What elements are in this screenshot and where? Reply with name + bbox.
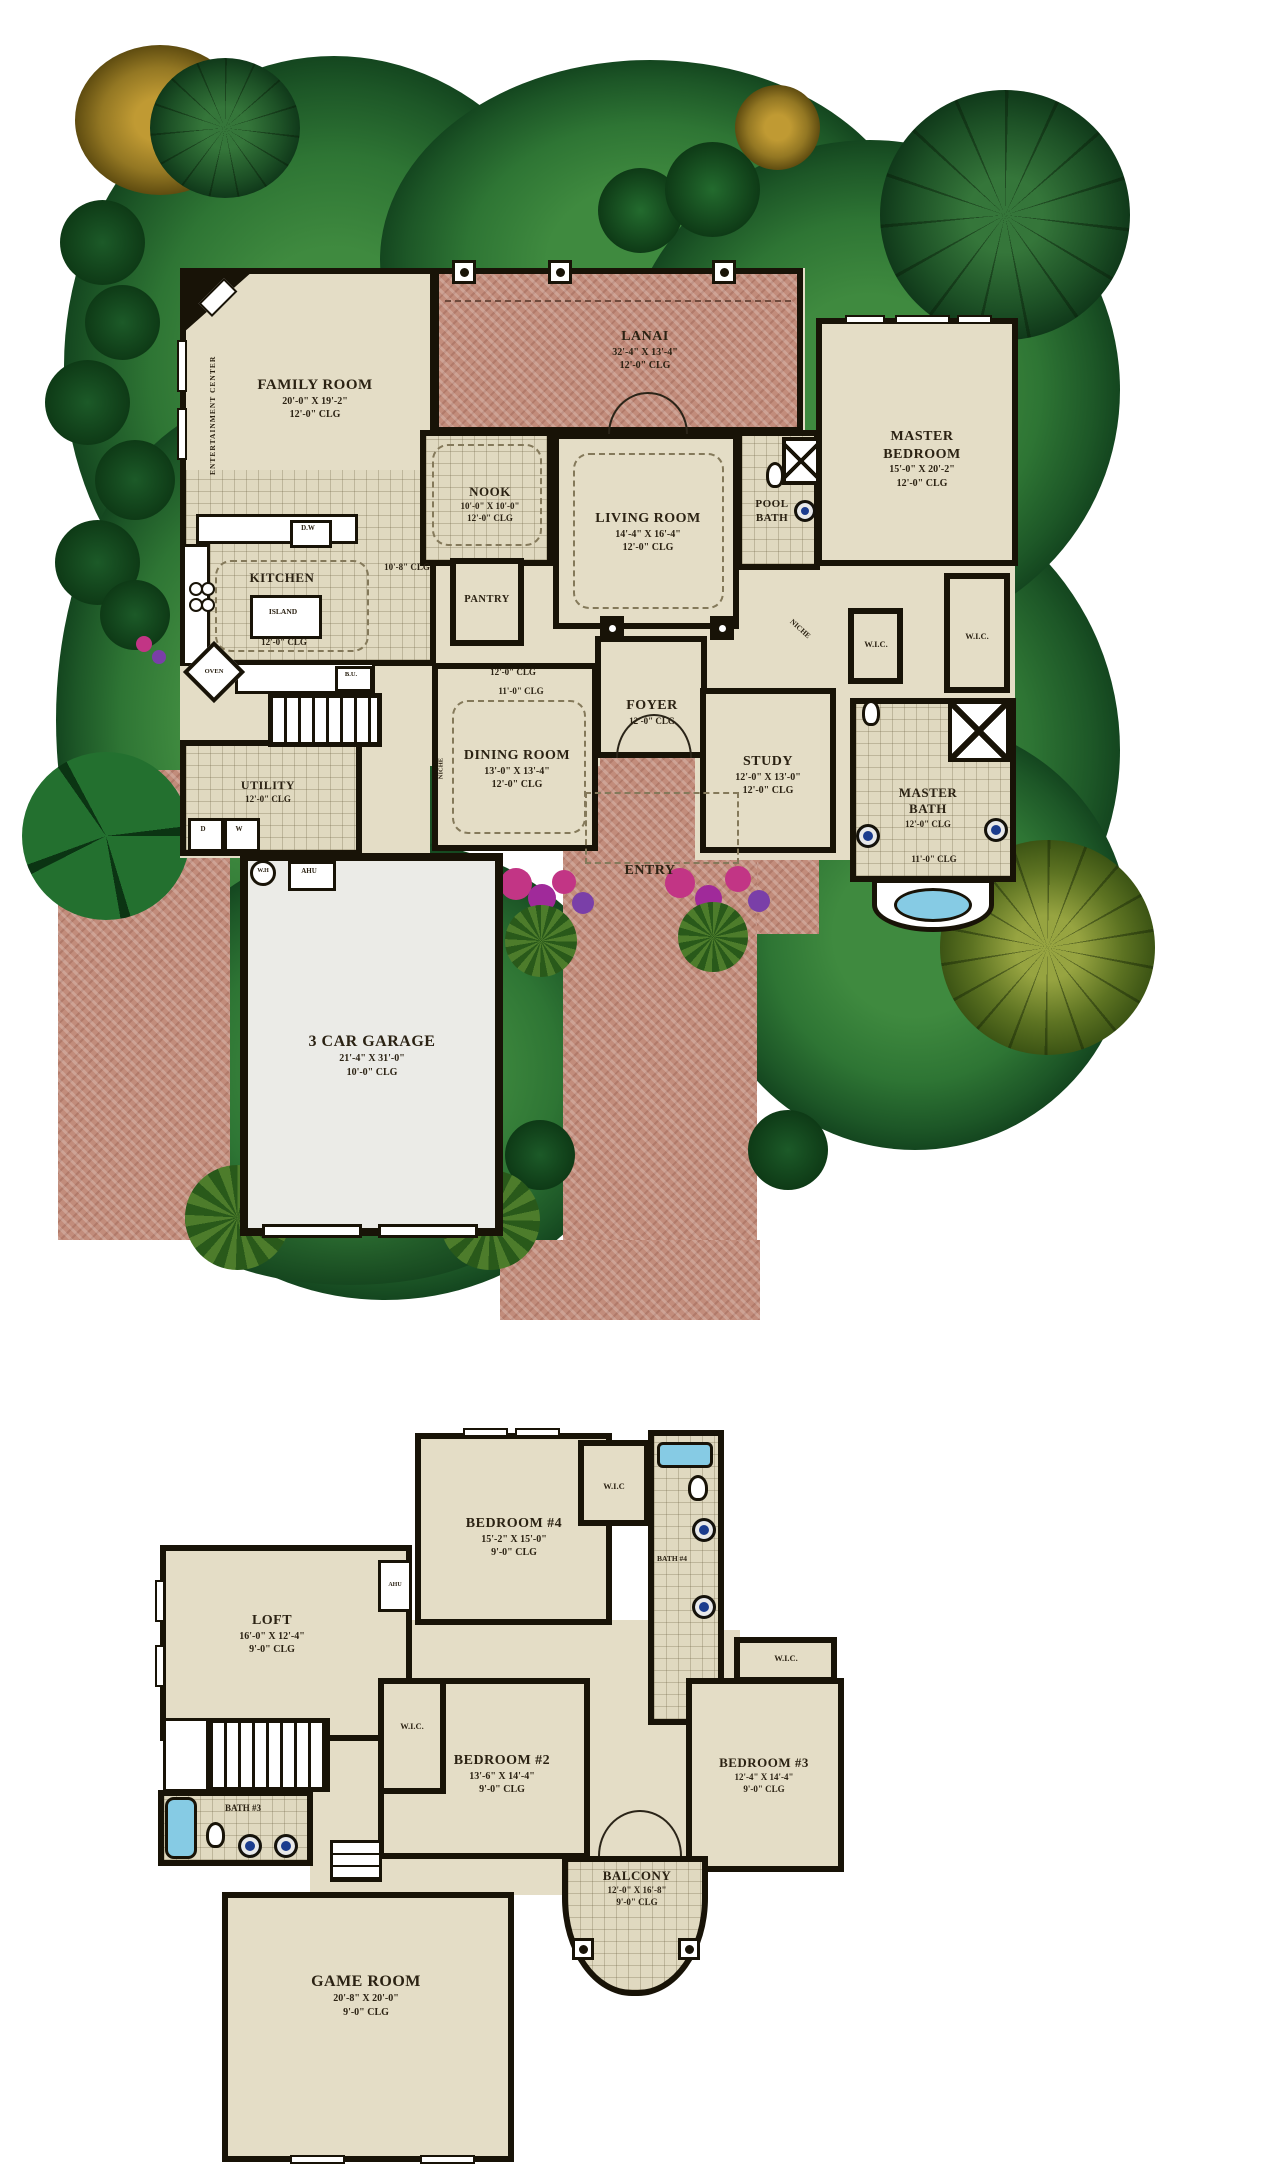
- bedroom2-label: BEDROOM #2 13'-6" X 14'-4" 9'-0" CLG: [427, 1752, 577, 1797]
- garage-door-panel: [262, 1224, 362, 1238]
- cooktop-burner: [201, 598, 215, 612]
- magenta-flowers: [552, 870, 576, 894]
- bush: [100, 580, 170, 650]
- sink: [692, 1595, 716, 1619]
- window: [463, 1428, 508, 1437]
- washer-label: W: [236, 826, 243, 834]
- master-bath-label: MASTER BATH 12'-0" CLG: [883, 785, 973, 830]
- bedroom3-label: BEDROOM #3 12'-4" X 14'-4" 9'-0" CLG: [694, 1755, 834, 1796]
- bath3-label: BATH #3: [225, 1804, 261, 1814]
- family-room-label: FAMILY ROOM 20'-0" X 19'-2" 12'-0" CLG: [215, 376, 415, 422]
- bu-label: B.U.: [345, 671, 357, 678]
- living-room-label: LIVING ROOM 14'-4" X 16'-4" 12'-0" CLG: [568, 510, 728, 555]
- wic-bed2-label: W.I.C.: [400, 1722, 424, 1731]
- balcony-label: BALCONY 12'-0" X 16'-8" 9'-0" CLG: [572, 1868, 702, 1909]
- first-floor-site-plan: ENTERTAINMENT CENTER D.W ISLAND: [0, 0, 1280, 1340]
- nook-label: NOOK 10'-0" X 10'-0" 12'-0" CLG: [435, 484, 545, 525]
- window: [515, 1428, 560, 1437]
- toilet: [766, 462, 784, 488]
- dining-hall-clg2: 11'-0" CLG: [498, 687, 543, 697]
- island: [250, 595, 322, 639]
- window: [895, 315, 950, 324]
- stair-landing: [163, 1718, 209, 1792]
- column: [600, 616, 624, 640]
- toilet: [862, 700, 880, 726]
- garage-door-panel: [378, 1224, 478, 1238]
- toilet: [206, 1822, 225, 1848]
- balcony-post: [678, 1938, 700, 1960]
- bath4-label: BATH #4: [657, 1555, 687, 1563]
- window: [177, 340, 187, 392]
- wic-bed4-label: W.I.C: [603, 1482, 624, 1491]
- window: [845, 315, 885, 324]
- lanai-column: [712, 260, 736, 284]
- master-shower: [948, 700, 1010, 762]
- kitchen-clg-label: 12'-0" CLG: [239, 636, 329, 648]
- dryer: [188, 818, 224, 852]
- cooktop-burner: [201, 582, 215, 596]
- purple-flowers: [748, 890, 770, 912]
- purple-flowers: [572, 892, 594, 914]
- sink: [274, 1834, 298, 1858]
- lanai-column: [452, 260, 476, 284]
- butler-unit: [335, 666, 373, 692]
- ahu-box: [288, 861, 336, 891]
- stairs-first-floor: [268, 693, 382, 747]
- island-label: ISLAND: [269, 608, 297, 616]
- hall-steps: [330, 1840, 382, 1882]
- tree-dark: [150, 58, 300, 198]
- shower: [782, 437, 820, 485]
- utility-label: UTILITY 12'-0" CLG: [218, 778, 318, 805]
- purple-flowers: [152, 650, 166, 664]
- oven-label: OVEN: [205, 668, 224, 675]
- sink: [692, 1518, 716, 1542]
- sink: [856, 824, 880, 848]
- niche2-label: NICHE: [437, 758, 444, 779]
- lanai-dashed-line: [445, 300, 791, 302]
- fern-plant: [505, 905, 577, 977]
- pool-bath-label: POOL BATH: [742, 498, 802, 526]
- magenta-flowers: [725, 866, 751, 892]
- entry-label: ENTRY: [600, 862, 700, 880]
- master-bedroom-label: MASTER BEDROOM 15'-0" X 20'-2" 12'-0" CL…: [867, 428, 977, 490]
- lanai-column: [548, 260, 572, 284]
- window: [290, 2155, 345, 2164]
- magenta-flowers: [136, 636, 152, 652]
- balcony-post: [572, 1938, 594, 1960]
- wic-bed3-label: W.I.C.: [774, 1654, 798, 1663]
- game-room-label: GAME ROOM 20'-8" X 20'-0" 9'-0" CLG: [266, 1972, 466, 2019]
- tree-pie: [22, 752, 190, 920]
- bush: [45, 360, 130, 445]
- pantry-label: PANTRY: [447, 593, 527, 606]
- window: [177, 408, 187, 460]
- window: [420, 2155, 475, 2164]
- walk-apron: [500, 1240, 760, 1320]
- dining-room-label: DINING ROOM 13'-0" X 13'-4" 12'-0" CLG: [442, 747, 592, 792]
- toilet: [688, 1475, 708, 1501]
- bedroom4-label: BEDROOM #4 15'-2" X 15'-0" 9'-0" CLG: [429, 1515, 599, 1560]
- second-floor-plan: BEDROOM #4 15'-2" X 15'-0" 9'-0" CLG W.I…: [0, 1340, 1280, 2165]
- study-label: STUDY 12'-0" X 13'-0" 12'-0" CLG: [708, 753, 828, 798]
- dining-hall-clg: 12'-0" CLG: [490, 668, 536, 678]
- porch-dashed: [585, 792, 739, 864]
- floor-plan-page: ENTERTAINMENT CENTER D.W ISLAND: [0, 0, 1280, 2165]
- wh-label: W.H: [257, 868, 269, 875]
- lanai-label: LANAI 32'-4" X 13'-4" 12'-0" CLG: [565, 328, 725, 373]
- bush-golden: [735, 85, 820, 170]
- bush: [60, 200, 145, 285]
- bath4-tub: [657, 1442, 713, 1468]
- garage-label: 3 CAR GARAGE 21'-4" X 31'-0" 10'-0" CLG: [262, 1032, 482, 1079]
- washer: [224, 818, 260, 852]
- dishwasher-label: D.W: [301, 525, 315, 533]
- window: [155, 1645, 165, 1687]
- garden-tub: [894, 888, 972, 922]
- fern-plant: [678, 902, 748, 972]
- bush: [85, 285, 160, 360]
- kitchen-counter-top: [196, 514, 358, 544]
- window: [155, 1580, 165, 1622]
- hall-clg-label: 10'-8" CLG: [384, 563, 430, 573]
- room-game: [222, 1892, 514, 2162]
- wic2-label: W.I.C.: [965, 632, 989, 641]
- sink: [238, 1834, 262, 1858]
- loft-label: LOFT 16'-0" X 12'-4" 9'-0" CLG: [202, 1612, 342, 1657]
- kitchen-label: KITCHEN: [227, 570, 337, 586]
- tree-large-dark: [880, 90, 1130, 340]
- wic1-label: W.I.C.: [864, 640, 888, 649]
- ahu2-label: AHU: [388, 1582, 401, 1589]
- bush: [748, 1110, 828, 1190]
- foyer-label: FOYER 12'-0" CLG: [607, 697, 697, 727]
- column: [710, 616, 734, 640]
- ahu-label: AHU: [301, 868, 317, 876]
- stairs-second-floor: [208, 1718, 330, 1792]
- sink: [984, 818, 1008, 842]
- dryer-label: D: [200, 826, 205, 834]
- bush: [95, 440, 175, 520]
- bath3-tub: [165, 1797, 197, 1859]
- window: [957, 315, 992, 324]
- master-bath-clg2: 11'-0" CLG: [911, 855, 956, 865]
